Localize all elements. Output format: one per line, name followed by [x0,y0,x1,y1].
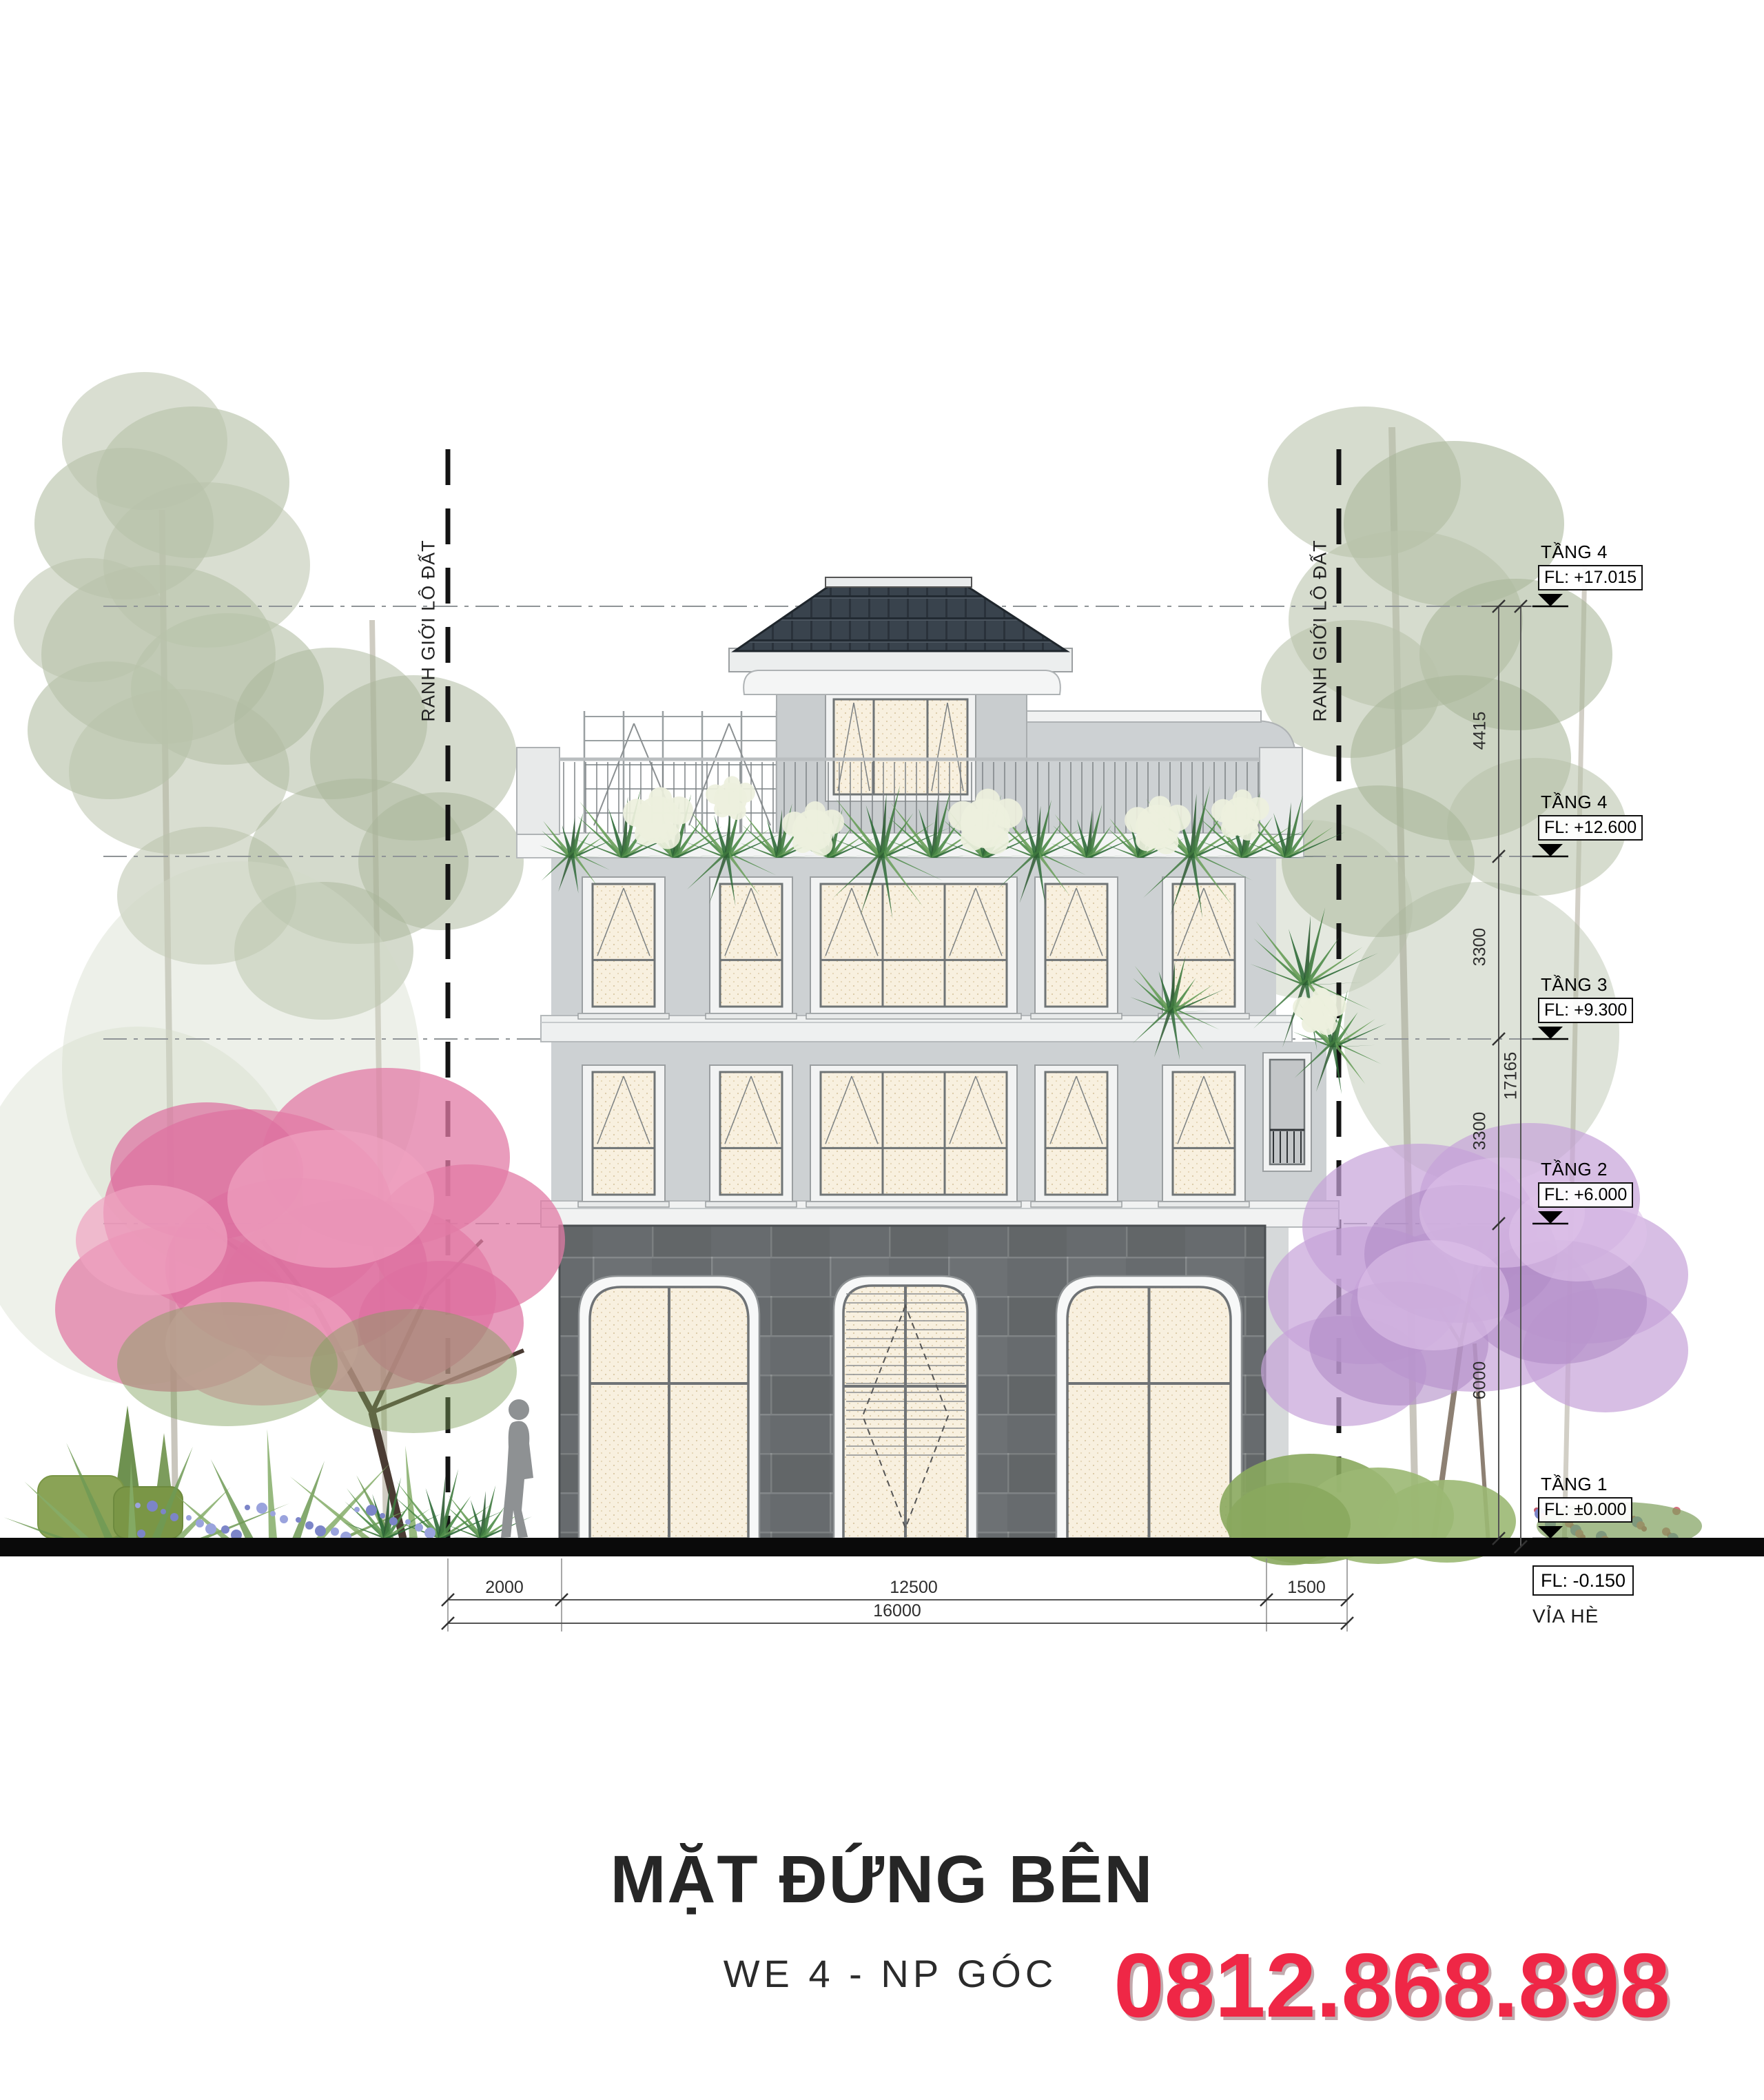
level-name: TẦNG 2 [1541,1159,1690,1180]
roof [735,586,1067,651]
level-elevation: FL: +12.600 [1538,815,1643,841]
dim-building-width: 12500 [859,1578,969,1598]
window [1031,1065,1122,1207]
window [706,1065,797,1207]
storefront-window [579,1276,759,1538]
level-elevation: FL: +17.015 [1538,565,1643,590]
boundary-label-left: RANH GIỚI LÔ ĐẤT [418,469,440,793]
window-wide [806,1065,1021,1207]
dim-setback-left: 2000 [449,1578,560,1598]
level-elevation: FL: ±0.000 [1538,1497,1632,1523]
level-name: TẦNG 3 [1541,974,1690,996]
storefront-window [1056,1276,1242,1538]
dim-floor4: 4415 [1470,662,1490,800]
ground-floor [560,1226,1265,1538]
dim-total-height: 17165 [1501,1007,1521,1145]
entry-door [834,1276,977,1538]
level-label-0: TẦNG 1 FL: ±0.000 [1538,1474,1690,1523]
sidewalk-line [0,1538,1764,1556]
level-name: TẦNG 4 [1541,792,1690,813]
level-label-6000: TẦNG 2 FL: +6.000 [1538,1159,1690,1208]
level-label-17015: TẦNG 4 FL: +17.015 [1538,542,1690,590]
sidewalk-elevation: FL: -0.150 [1532,1565,1634,1596]
window-wide [806,877,1021,1019]
window [706,877,797,1019]
level-elevation: FL: +6.000 [1538,1182,1633,1208]
contact-phone: 0812.868.898 [1047,1933,1736,2037]
penthouse-window [825,692,976,801]
person-silhouette [501,1399,533,1538]
dim-floor3: 3300 [1470,878,1490,1016]
level-elevation: FL: +9.300 [1538,998,1633,1023]
window [578,877,669,1019]
dim-floor2: 3300 [1470,1062,1490,1200]
dim-setback-right: 1500 [1251,1578,1362,1598]
window [578,1065,669,1207]
dim-lot-width: 16000 [842,1601,952,1621]
window [1158,1065,1249,1207]
elevation-drawing [0,0,1764,2100]
balcony-door [1263,1053,1311,1171]
level-name: TẦNG 1 [1541,1474,1690,1495]
dim-floor1: 6000 [1470,1312,1490,1450]
level-name: TẦNG 4 [1541,542,1690,563]
level-label-9300: TẦNG 3 FL: +9.300 [1538,974,1690,1023]
boundary-label-right: RANH GIỚI LÔ ĐẤT [1310,469,1331,793]
sidewalk-label: VỈA HÈ [1532,1605,1599,1627]
drawing-title: MẶT ĐỨNG BÊN [469,1841,1295,1918]
level-label-12600: TẦNG 4 FL: +12.600 [1538,792,1690,841]
